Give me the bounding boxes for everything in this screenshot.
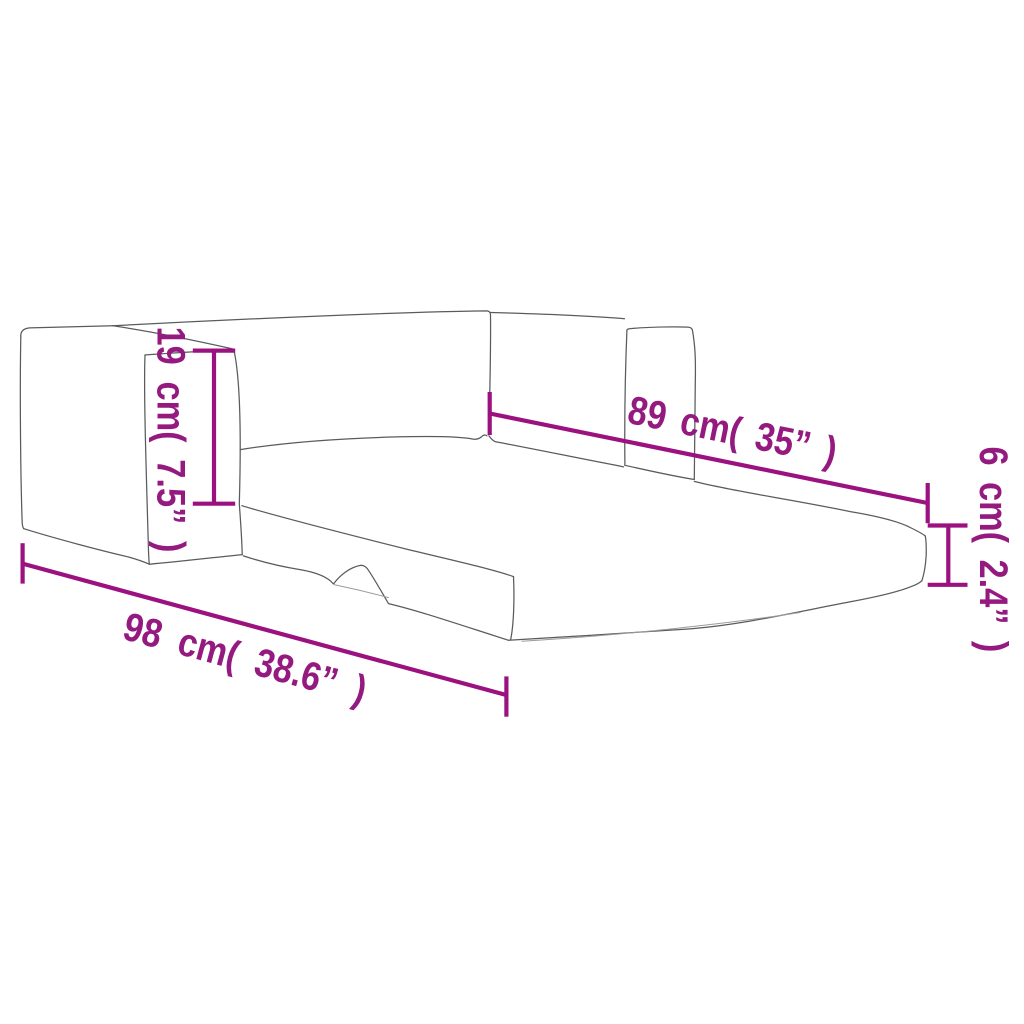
svg-text:19 cm( 7.5” ): 19 cm( 7.5” ): [149, 327, 194, 553]
svg-text:89 cm( 35” ): 89 cm( 35” ): [624, 387, 841, 474]
svg-text:6 cm( 2.4” ): 6 cm( 2.4” ): [971, 447, 1016, 653]
svg-text:98 cm( 38.6” ): 98 cm( 38.6” ): [119, 603, 372, 712]
